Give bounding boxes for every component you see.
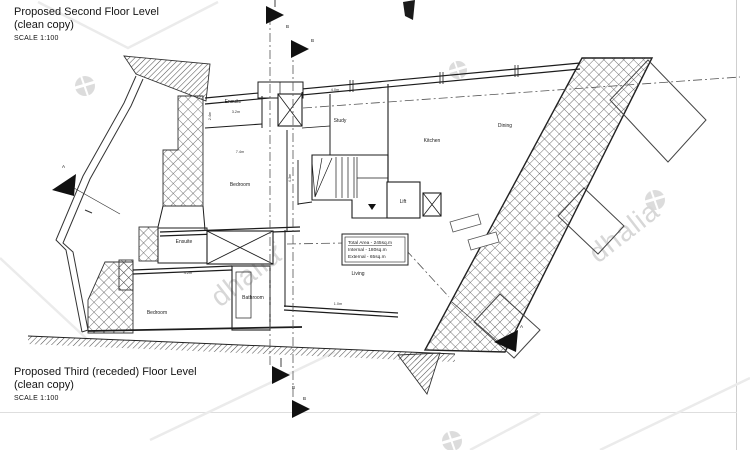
title-block-third-floor: Proposed Third (receded) Floor Level (cl…: [14, 366, 197, 403]
section-marker-label: B: [292, 385, 295, 390]
hatched-strip-bottom: [28, 336, 455, 362]
annotation-internal-area: Internal - 180sq.m: [348, 247, 387, 253]
hatched-wall-segment: [139, 227, 158, 261]
section-marker-label: B: [303, 396, 306, 401]
annotation-total-area: Total Area - 245sq.m: [348, 240, 392, 246]
drawing-scale: SCALE 1:100: [14, 394, 197, 403]
hatched-wall-bottom-left: [88, 262, 133, 333]
hatched-wall-top-left: [124, 56, 210, 101]
room-label-study: Study: [334, 118, 347, 124]
section-marker-icon: [266, 6, 284, 24]
drawing-subtitle: (clean copy): [14, 19, 159, 32]
room-label-living: Living: [351, 271, 364, 277]
dim-label: 4.2m: [184, 271, 192, 275]
dim-label: 3.2m: [232, 110, 240, 114]
room-label-bedroom-3f: Bedroom: [147, 310, 167, 316]
dhalia-logo-icon: [449, 61, 467, 79]
section-marker-label: B: [286, 24, 289, 29]
section-marker-icon: [292, 400, 310, 418]
dim-label: 4.3m: [288, 174, 292, 182]
section-marker-label: A: [520, 324, 523, 329]
drawing-subtitle: (clean copy): [14, 379, 197, 392]
section-marker-icon: [52, 174, 76, 196]
dark-wall-mark: [403, 0, 415, 20]
dim-label: 1.0m: [334, 302, 342, 306]
section-marker-icon: [291, 40, 309, 58]
dhalia-logo-icon: [75, 76, 95, 96]
drawing-scale: SCALE 1:100: [14, 34, 159, 43]
party-wall-band-left: [163, 96, 203, 206]
annotation-external-area: External - 65sq.m: [348, 254, 386, 260]
room-label-bathroom: Bathroom: [242, 295, 264, 301]
room-label-bedroom-2f: Bedroom: [230, 182, 250, 188]
section-marker-label: A: [62, 164, 65, 169]
floor-plan-sheet: dhalia dhalia: [0, 0, 750, 450]
dim-label: 4.0m: [331, 88, 339, 92]
watermark-text: dhalia: [583, 195, 666, 269]
section-marker-label: B: [311, 38, 314, 43]
dhalia-logo-icon: [442, 431, 462, 450]
room-label-ensuite-2f: Ensuite: [225, 99, 242, 105]
room-label-dining: Dining: [498, 123, 512, 129]
dim-label: 2.4m: [208, 112, 212, 120]
drawing-title: Proposed Third (receded) Floor Level: [14, 366, 197, 379]
room-label-kitchen: Kitchen: [424, 138, 441, 144]
hatched-wall-bottom-right: [398, 353, 440, 394]
drawing-title: Proposed Second Floor Level: [14, 6, 159, 19]
title-block-second-floor: Proposed Second Floor Level (clean copy)…: [14, 6, 159, 43]
section-marker-icon: [272, 366, 290, 384]
area-annotation-box: Total Area - 245sq.m Internal - 180sq.m …: [342, 234, 408, 265]
staircase: [312, 155, 388, 218]
room-label-ensuite-3f: Ensuite: [176, 239, 193, 245]
dim-label: 7.4m: [236, 150, 244, 154]
stair-direction-arrow: [368, 204, 376, 210]
room-label-lift: Lift: [400, 199, 407, 205]
